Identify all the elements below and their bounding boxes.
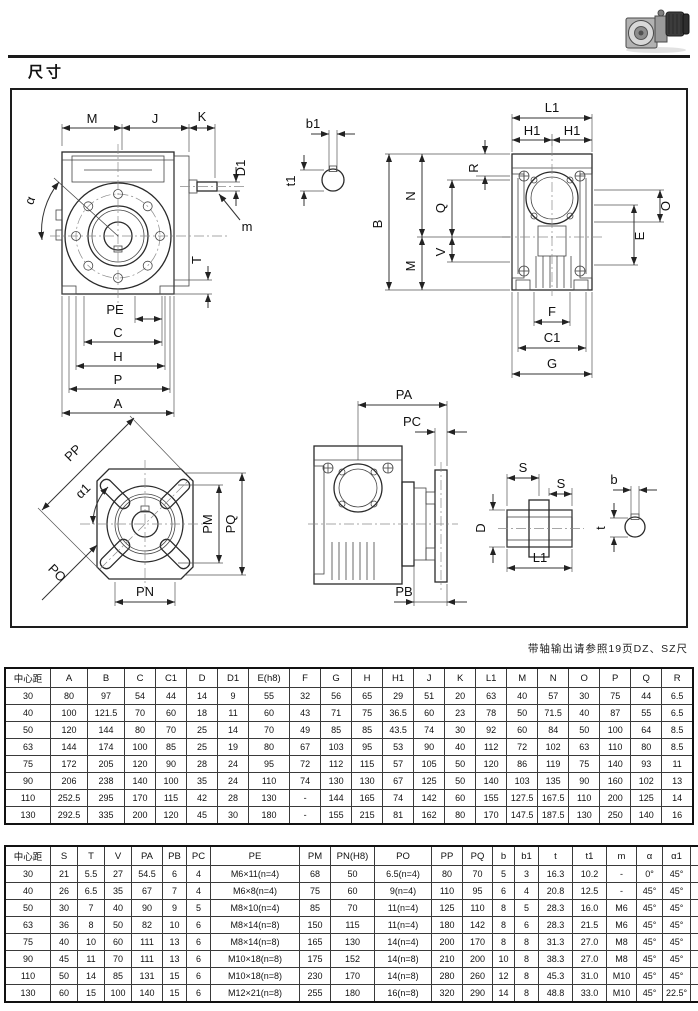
table-cell: 45.3 (539, 968, 573, 985)
table-cell: 25 (187, 722, 218, 739)
dim-label-PO: PO (45, 561, 69, 585)
table-cell: 87 (600, 705, 631, 722)
table-cell: 85 (105, 968, 132, 985)
table-cell: 45° (637, 917, 663, 934)
column-header: α1 (663, 846, 691, 866)
table-cell: 40 (105, 900, 132, 917)
table-cell: 130 (249, 790, 290, 807)
column-header: Kg (691, 846, 698, 866)
table-cell: 140 (132, 985, 163, 1003)
table-cell: 49 (290, 722, 321, 739)
table-cell: M10 (607, 968, 637, 985)
table-cell: 36 (51, 917, 78, 934)
table-cell: 7 (78, 900, 105, 917)
table-cell: 60 (331, 883, 375, 900)
table-cell: 45° (663, 866, 691, 883)
table-cell: 320 (432, 985, 463, 1003)
table-cell: 74 (414, 722, 445, 739)
table-cell: 110 (249, 773, 290, 790)
table-cell: 45 (187, 807, 218, 825)
table-cell: 14 (187, 688, 218, 705)
table-cell: 27 (105, 866, 132, 883)
table-cell: - (290, 807, 321, 825)
table-cell: 180 (331, 985, 375, 1003)
table-cell: 6 (187, 934, 211, 951)
table-cell: 21.5 (573, 917, 607, 934)
table-cell: 95 (463, 883, 493, 900)
table-cell: 9 (218, 688, 249, 705)
dimension-table-1: 中心距ABCC1DD1E(h8)FGHH1JKL1MNOPQR 30809754… (4, 667, 694, 825)
table-cell: 6.5 (662, 705, 693, 722)
table-cell: 95 (352, 739, 383, 756)
table-cell: 60 (507, 722, 538, 739)
dim-label-T: T (189, 256, 204, 264)
table-cell: 100 (105, 985, 132, 1003)
table-cell: 5 (187, 900, 211, 917)
table-cell: 71.5 (538, 705, 569, 722)
table-cell: 9 (691, 934, 698, 951)
table-cell: 200 (600, 790, 631, 807)
table-cell: 127.5 (507, 790, 538, 807)
column-header: PA (132, 846, 163, 866)
table-cell: 70 (249, 722, 290, 739)
table-cell: 110 (5, 968, 51, 985)
table-cell: 10 (493, 951, 515, 968)
table-row: 7517220512090282495721121155710550120861… (5, 756, 693, 773)
input-keyway-detail: b1 t1 (283, 116, 355, 206)
table-cell: 30 (218, 807, 249, 825)
table-cell: 60 (51, 985, 78, 1003)
dim-label-t: t (593, 526, 608, 530)
table-cell: 93 (631, 756, 662, 773)
front-view: M J K D1 m T α PE (21, 109, 252, 417)
dim-label-H: H (113, 349, 122, 364)
table-cell: 13 (163, 934, 187, 951)
table-cell: 85 (300, 900, 331, 917)
table-cell: 29 (383, 688, 414, 705)
table-cell: 170 (463, 934, 493, 951)
table-row: 50307409095M8×10(n=4)857011(n=4)12511085… (5, 900, 698, 917)
table-cell: 115 (331, 917, 375, 934)
table-cell: 111 (132, 951, 163, 968)
table-cell: 5 (515, 900, 539, 917)
table-cell: 45° (663, 917, 691, 934)
table-cell: 26 (51, 883, 78, 900)
table-cell: 8 (493, 900, 515, 917)
table-cell: 167.5 (538, 790, 569, 807)
table-cell: 8.5 (662, 722, 693, 739)
table-cell: 14 (493, 985, 515, 1003)
table-cell: 82 (132, 917, 163, 934)
table-cell: 8 (515, 968, 539, 985)
flange-view: PP α1 PO PM PQ PN (38, 416, 246, 606)
table-cell: 48.8 (539, 985, 573, 1003)
table-cell: 80 (125, 722, 156, 739)
table-cell: 131 (132, 968, 163, 985)
table-cell: 147.5 (507, 807, 538, 825)
table-cell: 97 (88, 688, 125, 705)
table-cell: 95 (249, 756, 290, 773)
table-cell: 103 (507, 773, 538, 790)
table-cell: 12 (493, 968, 515, 985)
table-row: 130292.53352001204530180-155215811628017… (5, 807, 693, 825)
side-view: L1 H1 H1 B N M Q V R O E (370, 100, 673, 378)
table-cell: 172 (51, 756, 88, 773)
table-cell: 142 (414, 790, 445, 807)
table-cell: 80 (51, 688, 88, 705)
table-cell: 18 (187, 705, 218, 722)
table-cell: 120 (51, 722, 88, 739)
column-header: O (569, 668, 600, 688)
table-cell: 290 (463, 985, 493, 1003)
table-cell: 60 (249, 705, 290, 722)
table-cell: 9 (163, 900, 187, 917)
table-cell: 45° (637, 951, 663, 968)
table-cell: M8×14(n=8) (211, 934, 300, 951)
table-cell: 110 (463, 900, 493, 917)
table-cell: 4 (187, 883, 211, 900)
table-cell: 36.5 (383, 705, 414, 722)
dim-label-PM: PM (200, 514, 215, 534)
dim-label-PA: PA (396, 387, 413, 402)
table-cell: 65 (352, 688, 383, 705)
table-cell: 103 (321, 739, 352, 756)
table-cell: 102 (631, 773, 662, 790)
table-cell: 25 (187, 739, 218, 756)
table-cell: 57 (383, 756, 414, 773)
table-cell: 31.0 (573, 968, 607, 985)
table-cell: 64 (631, 722, 662, 739)
dim-label-b1: b1 (306, 116, 320, 131)
table-cell: 4 (187, 866, 211, 883)
table-cell: 15 (163, 968, 187, 985)
table-cell: 85 (352, 722, 383, 739)
table-cell: 6 (187, 985, 211, 1003)
table-cell: 8 (493, 917, 515, 934)
table-cell: 125 (631, 790, 662, 807)
table-cell: 40 (569, 705, 600, 722)
table-cell: 110 (569, 790, 600, 807)
table-cell: 6 (187, 968, 211, 985)
column-header: t1 (573, 846, 607, 866)
table-cell: 72 (507, 739, 538, 756)
table-cell: - (607, 866, 637, 883)
table-cell: 90 (156, 756, 187, 773)
table-cell: 68 (300, 866, 331, 883)
table-cell: 130 (5, 807, 51, 825)
table-cell: 165 (352, 790, 383, 807)
table-cell: 80 (631, 739, 662, 756)
column-header: H (352, 668, 383, 688)
table-cell: 85 (321, 722, 352, 739)
table-cell: 50 (5, 722, 51, 739)
table-cell: 12.5 (573, 883, 607, 900)
column-header: PC (187, 846, 211, 866)
table-cell: 6.5 (78, 883, 105, 900)
table-cell: 14 (218, 722, 249, 739)
table-cell: 16(n=8) (375, 985, 432, 1003)
table-cell: 30 (5, 688, 51, 705)
dim-label-PC: PC (403, 414, 421, 429)
dim-label-D1: D1 (233, 160, 248, 177)
table-cell: 8 (493, 934, 515, 951)
table-cell: 100 (125, 739, 156, 756)
table-cell: M6 (607, 900, 637, 917)
table-cell: 63 (5, 739, 51, 756)
table-cell: 140 (125, 773, 156, 790)
dim-label-PQ: PQ (223, 515, 238, 534)
column-header: b1 (515, 846, 539, 866)
dim-label-A: A (114, 396, 123, 411)
table-row: 40266.5356774M6×8(n=4)75609(n=4)11095642… (5, 883, 698, 900)
table-cell: 28 (187, 756, 218, 773)
table-cell: 70 (331, 900, 375, 917)
table-row: 110252.52951701154228130-144165741426015… (5, 790, 693, 807)
table-cell: 115 (156, 790, 187, 807)
table-cell: 119 (538, 756, 569, 773)
table-cell: 130 (352, 773, 383, 790)
column-header: 中心距 (5, 846, 51, 866)
table-cell: 74 (383, 790, 414, 807)
table-cell: 35 (105, 883, 132, 900)
table-cell: 14(n=8) (375, 951, 432, 968)
table-cell: 45° (663, 883, 691, 900)
table-cell: 60 (156, 705, 187, 722)
table-cell: 130 (569, 807, 600, 825)
table-cell: 75 (5, 756, 51, 773)
table-cell: 63 (5, 917, 51, 934)
table-cell: 90 (5, 951, 51, 968)
column-header: b (493, 846, 515, 866)
column-header: E(h8) (249, 668, 290, 688)
table-cell: M10×18(n=8) (211, 968, 300, 985)
table-cell: 30 (5, 866, 51, 883)
dimension-table-2: 中心距STVPAPBPCPEPMPN(H8)POPPPQbb1tt1mαα1Kg… (4, 845, 698, 1003)
table-cell: 170 (331, 968, 375, 985)
table-cell: M6×8(n=4) (211, 883, 300, 900)
table-cell: 80 (249, 739, 290, 756)
column-header: H1 (383, 668, 414, 688)
table-cell: 10 (78, 934, 105, 951)
column-header: PQ (463, 846, 493, 866)
dim-label-R: R (466, 163, 481, 172)
table-cell: 80 (445, 807, 476, 825)
table-cell: 54 (125, 688, 156, 705)
table-cell: 10 (163, 917, 187, 934)
dim-label-J: J (152, 111, 159, 126)
table-cell: 238 (88, 773, 125, 790)
table-cell: 90 (132, 900, 163, 917)
dim-label-M2: M (403, 261, 418, 272)
table-cell: 9(n=4) (375, 883, 432, 900)
column-header: R (662, 668, 693, 688)
table-cell: 6 (187, 951, 211, 968)
table-cell: 35 (691, 968, 698, 985)
table-cell: 70 (156, 722, 187, 739)
column-header: α (637, 846, 663, 866)
table-cell: 19 (218, 739, 249, 756)
table-cell: 33.0 (573, 985, 607, 1003)
table-cell: 5 (493, 866, 515, 883)
dim-label-b: b (610, 472, 617, 487)
table-cell: 110 (432, 883, 463, 900)
table-cell: 6.5(n=4) (375, 866, 432, 883)
table-cell: 24 (218, 756, 249, 773)
table-cell: 16.0 (573, 900, 607, 917)
dim-label-m: m (242, 219, 253, 234)
table-cell: 84 (538, 722, 569, 739)
table-cell: 6 (187, 917, 211, 934)
table-cell: M8×14(n=8) (211, 917, 300, 934)
dimension-table-2-wrap: 中心距STVPAPBPCPEPMPN(H8)POPPPQbb1tt1mαα1Kg… (4, 845, 694, 1003)
table-cell: 105 (414, 756, 445, 773)
column-header: PE (211, 846, 300, 866)
side-view-flange: PA PC PB (308, 387, 467, 606)
table-cell: 142 (463, 917, 493, 934)
table-cell: 30 (445, 722, 476, 739)
dim-label-P: P (114, 372, 123, 387)
table-cell: 295 (88, 790, 125, 807)
dim-label-F: F (548, 304, 556, 319)
column-header: PM (300, 846, 331, 866)
table-cell: 180 (249, 807, 290, 825)
table-cell: 45° (637, 934, 663, 951)
table-cell: 45° (637, 900, 663, 917)
table-cell: 72 (290, 756, 321, 773)
table-cell: 50 (331, 866, 375, 883)
table-cell: 70 (105, 951, 132, 968)
column-header: N (538, 668, 569, 688)
table-cell: 60 (414, 705, 445, 722)
table-cell: 230 (300, 968, 331, 985)
table-cell: 67 (290, 739, 321, 756)
column-header: PP (432, 846, 463, 866)
table-cell: 187.5 (538, 807, 569, 825)
table-cell: 125 (432, 900, 463, 917)
table-cell: 15 (78, 985, 105, 1003)
table-cell: 8 (515, 934, 539, 951)
dim-label-L1: L1 (545, 100, 559, 115)
table-cell: 11 (662, 756, 693, 773)
table-cell: 135 (538, 773, 569, 790)
table-cell: 165 (300, 934, 331, 951)
table-cell: 100 (51, 705, 88, 722)
table-cell: 20 (445, 688, 476, 705)
table-cell: 292.5 (51, 807, 88, 825)
table-cell: 63 (476, 688, 507, 705)
table-cell: M12×21(n=8) (211, 985, 300, 1003)
column-header: D1 (218, 668, 249, 688)
table-cell: 45 (51, 951, 78, 968)
table-cell: 6 (515, 917, 539, 934)
table-cell: 111 (132, 934, 163, 951)
table-row: 75401060111136M8×14(n=8)16513014(n=4)200… (5, 934, 698, 951)
table-cell: 56 (321, 688, 352, 705)
table-cell: 335 (88, 807, 125, 825)
table-cell: 27.0 (573, 934, 607, 951)
column-header: V (105, 846, 132, 866)
table-cell: 14(n=8) (375, 968, 432, 985)
table-cell: M10 (607, 985, 637, 1003)
table-cell: 50 (507, 705, 538, 722)
table-cell: M8×10(n=4) (211, 900, 300, 917)
table-cell: 140 (600, 756, 631, 773)
table-cell: 4 (515, 883, 539, 900)
table-cell: 40 (507, 688, 538, 705)
table-cell: 50 (445, 773, 476, 790)
table-cell: 60 (445, 790, 476, 807)
table-cell: 50 (445, 756, 476, 773)
table-cell: 160 (600, 773, 631, 790)
table-cell: 27.0 (573, 951, 607, 968)
technical-drawing: M J K D1 m T α PE (12, 90, 686, 626)
column-header: S (51, 846, 78, 866)
table-cell: 144 (88, 722, 125, 739)
table-cell: 45° (663, 951, 691, 968)
table-cell: 7 (163, 883, 187, 900)
table-cell: 152 (331, 951, 375, 968)
table-cell: M8 (607, 934, 637, 951)
dim-label-L1-shaft: L1 (533, 550, 547, 565)
table-cell: 45° (663, 968, 691, 985)
column-header: D (187, 668, 218, 688)
table-cell: 54.5 (132, 866, 163, 883)
table-cell: 50 (105, 917, 132, 934)
table-cell: 250 (600, 807, 631, 825)
table-cell: 75 (300, 883, 331, 900)
table-cell: 92 (476, 722, 507, 739)
table-cell: 200 (432, 934, 463, 951)
table-cell: 120 (156, 807, 187, 825)
table-cell: 50 (51, 968, 78, 985)
table-cell: 53 (383, 739, 414, 756)
table-cell: 140 (631, 807, 662, 825)
table-cell: 175 (300, 951, 331, 968)
dim-label-alpha: α (21, 194, 38, 207)
table-cell: 74 (290, 773, 321, 790)
table-row: 9020623814010035241107413013067125501401… (5, 773, 693, 790)
column-header: J (414, 668, 445, 688)
table-cell: 252.5 (51, 790, 88, 807)
table-cell: 80 (432, 866, 463, 883)
dim-label-E: E (632, 231, 647, 240)
table-cell: 50 (569, 722, 600, 739)
gearbox-photo (620, 5, 694, 55)
table-cell: 155 (321, 807, 352, 825)
column-header: PN(H8) (331, 846, 375, 866)
dim-label-K: K (198, 109, 207, 124)
table-cell: 44 (156, 688, 187, 705)
table-cell: 75 (5, 934, 51, 951)
table-cell: 8 (515, 985, 539, 1003)
header-row: 中心距STVPAPBPCPEPMPN(H8)POPPPQbb1tt1mαα1Kg (5, 846, 698, 866)
table-row: 633685082106M8×14(n=8)15011511(n=4)18014… (5, 917, 698, 934)
dim-label-t1: t1 (283, 176, 298, 187)
table-cell: 162 (414, 807, 445, 825)
table-cell: 14(n=4) (375, 934, 432, 951)
table-cell: 155 (476, 790, 507, 807)
table-cell: 35 (187, 773, 218, 790)
table-cell: 112 (321, 756, 352, 773)
dim-label-PE: PE (106, 302, 124, 317)
table-cell: 255 (300, 985, 331, 1003)
table-cell: 210 (432, 951, 463, 968)
table-cell: 112 (476, 739, 507, 756)
table-cell: 13 (691, 951, 698, 968)
dim-label-alpha1: α1 (72, 480, 93, 501)
column-header: PB (163, 846, 187, 866)
table-cell: 70 (125, 705, 156, 722)
